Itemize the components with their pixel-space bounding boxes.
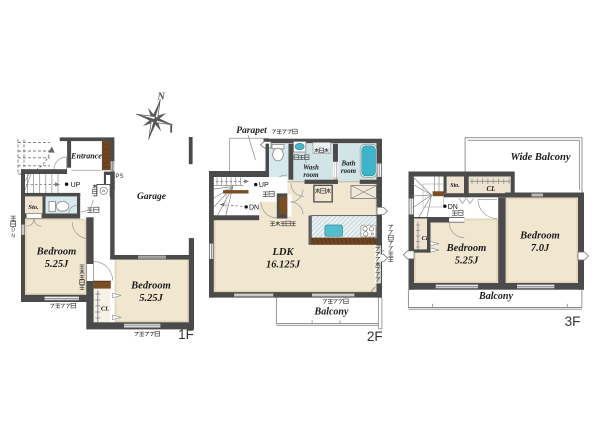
svg-text:3F: 3F (565, 314, 581, 329)
svg-text:room: room (303, 171, 319, 179)
svg-text:Parapet: Parapet (236, 126, 267, 136)
svg-text:Wide Balcony: Wide Balcony (511, 152, 571, 163)
svg-text:Entrance: Entrance (70, 152, 102, 161)
svg-text:N: N (11, 234, 15, 240)
svg-text:Balcony: Balcony (314, 307, 349, 318)
svg-text:1F: 1F (178, 327, 194, 342)
svg-text:7.0J: 7.0J (531, 243, 550, 254)
svg-text:Sto.: Sto. (28, 204, 39, 211)
svg-text:16.125J: 16.125J (266, 260, 301, 271)
svg-text:2F: 2F (367, 329, 383, 344)
svg-text:Bedroom: Bedroom (36, 247, 77, 258)
svg-text:Bedroom: Bedroom (446, 243, 487, 254)
svg-text:Bedroom: Bedroom (519, 231, 560, 242)
svg-text:N: N (156, 91, 165, 102)
svg-text:5.25J: 5.25J (455, 256, 479, 267)
svg-text:5.25J: 5.25J (139, 293, 163, 304)
svg-text:UP: UP (259, 182, 269, 189)
svg-text:PS: PS (115, 173, 123, 180)
svg-text:LDK: LDK (272, 247, 295, 258)
svg-text:Bedroom: Bedroom (130, 281, 171, 292)
svg-text:Balcony: Balcony (478, 291, 513, 302)
svg-text:5.25J: 5.25J (45, 259, 69, 270)
svg-text:CL: CL (101, 306, 109, 313)
svg-text:UP: UP (71, 182, 81, 189)
svg-text:Garage: Garage (137, 192, 167, 202)
svg-text:Sto.: Sto. (450, 183, 460, 189)
svg-text:room: room (341, 167, 357, 175)
svg-text:CL: CL (487, 185, 496, 193)
svg-text:DN: DN (448, 204, 458, 211)
svg-text:DN: DN (249, 205, 259, 212)
